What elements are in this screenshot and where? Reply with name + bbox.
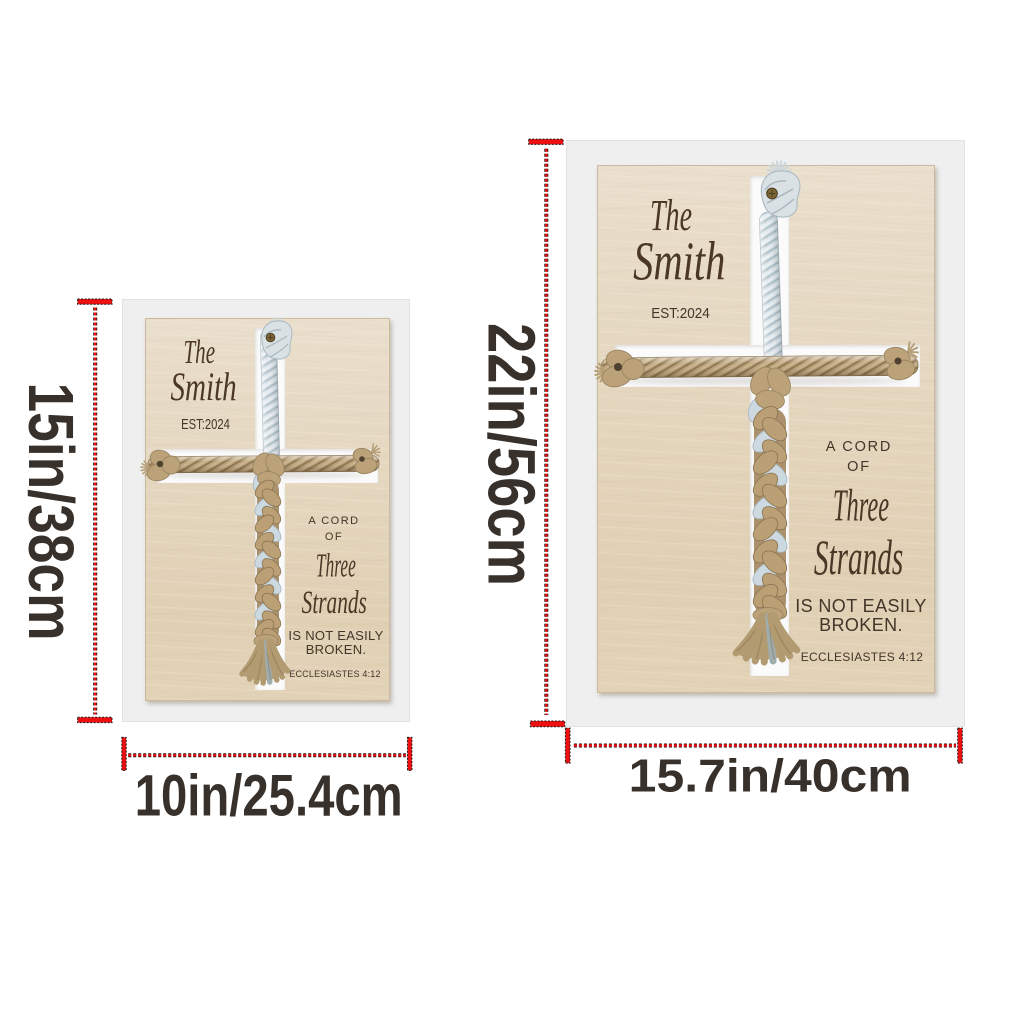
svg-text:15.7in/40cm: 15.7in/40cm — [629, 749, 912, 801]
svg-text:22in/56cm: 22in/56cm — [474, 323, 549, 586]
svg-text:15in/38cm: 15in/38cm — [15, 383, 87, 641]
svg-text:10in/25.4cm: 10in/25.4cm — [135, 763, 403, 828]
